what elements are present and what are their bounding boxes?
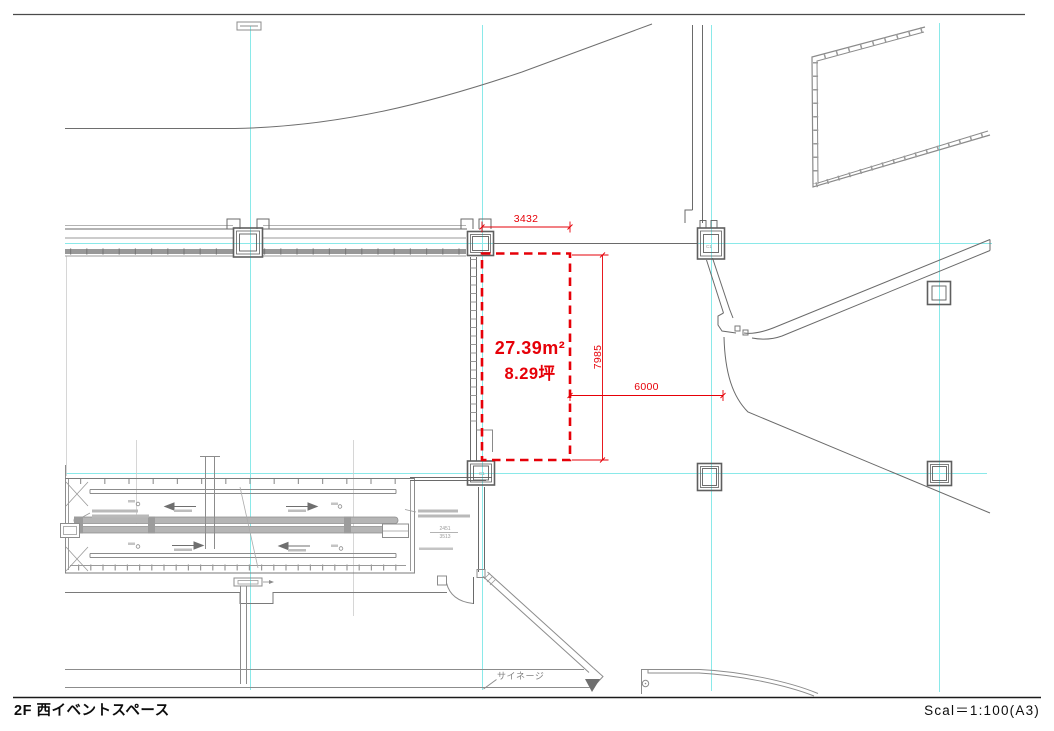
column-label-c1: C1: [479, 471, 485, 476]
bottom-right-structure: [642, 669, 819, 696]
mini-dimension-upper: 2451: [432, 526, 458, 532]
minor-grid: [67, 256, 354, 616]
column-label-c1: C1: [706, 244, 712, 249]
upper-right-wall: [685, 25, 703, 223]
tilted-display-wall: [812, 27, 990, 187]
sheet-title: 2F 西イベントスペース: [14, 699, 170, 720]
sheet-scale-label: Scal＝1:100(A3): [840, 699, 1040, 719]
highlight-area-square-meters: 27.39m²: [466, 338, 594, 359]
lower-walls: [65, 478, 492, 685]
dimension-height-7985: 7985: [592, 339, 604, 375]
mini-dimension-lower: 3513: [432, 534, 458, 540]
corridor-and-curve: [707, 258, 991, 513]
floor-plan-sheet: 27.39m² 8.29坪 3432 7985 6000 サイネージ 2451 …: [0, 0, 1054, 731]
dimension-width-3432: 3432: [482, 213, 570, 225]
escalator-micro-annotations: [79, 500, 470, 552]
right-diagonal-wall: [735, 240, 990, 340]
top-wall: [65, 219, 698, 256]
signage-label: サイネージ: [497, 669, 544, 682]
dimension-offset-6000: 6000: [570, 381, 723, 393]
curved-boundary-upper: [65, 24, 652, 129]
top-bracket-symbol: [237, 22, 261, 30]
